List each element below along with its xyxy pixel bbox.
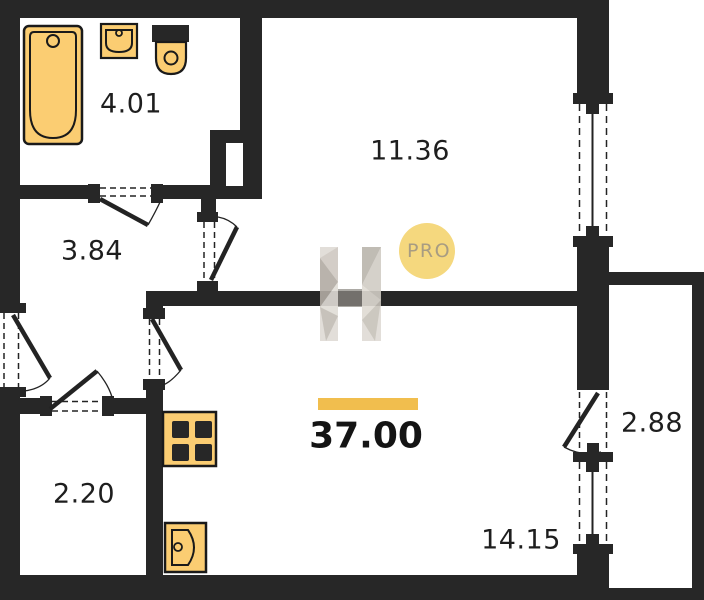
bathtub-icon <box>24 26 82 144</box>
total-area-underline <box>318 398 418 410</box>
ventilation-shaft <box>226 143 243 186</box>
entrance-door <box>0 303 50 397</box>
top-room-door <box>197 212 237 291</box>
area-label-top-room: 11.36 <box>370 136 450 167</box>
bottom-room-door <box>143 308 181 390</box>
closet-door <box>40 371 114 416</box>
floor-plan: 4.01 3.84 11.36 2.20 14.15 2.88 37.00 PR… <box>0 0 704 600</box>
h-logo-watermark <box>320 247 381 341</box>
area-label-hallway: 3.84 <box>61 236 123 267</box>
stove-icon <box>163 412 216 466</box>
area-label-balcony: 2.88 <box>621 408 683 439</box>
balcony-door <box>564 392 607 454</box>
bathroom-sink-icon <box>101 24 137 58</box>
toilet-icon <box>152 25 189 74</box>
bottom-room-window <box>573 452 613 554</box>
area-label-bottom-room: 14.15 <box>481 525 561 556</box>
area-label-bathroom: 4.01 <box>100 89 162 120</box>
total-area-value: 37.00 <box>309 416 423 457</box>
pro-badge-label: PRO <box>407 240 451 262</box>
top-room-window <box>573 93 613 247</box>
kitchen-sink-icon <box>165 523 206 572</box>
area-label-closet: 2.20 <box>53 479 115 510</box>
bathroom-door <box>88 184 163 225</box>
